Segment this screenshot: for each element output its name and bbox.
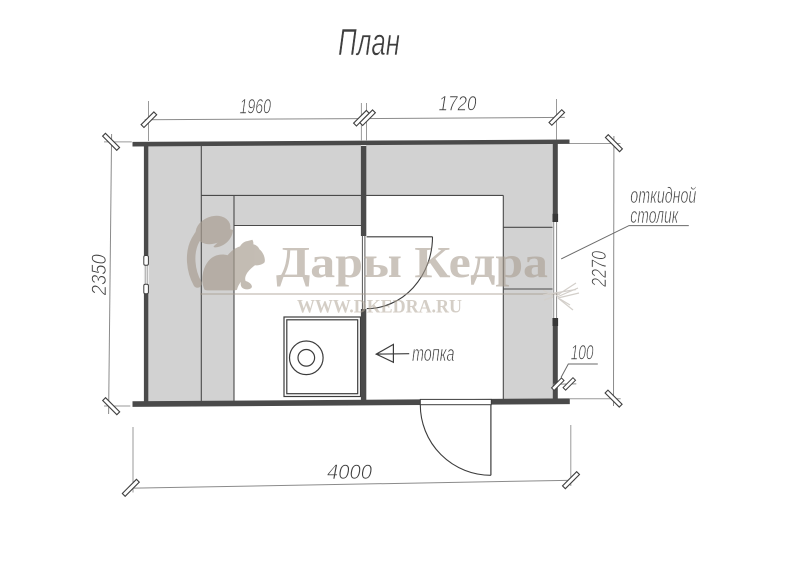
svg-text:WWW.DKEDRA.RU: WWW.DKEDRA.RU bbox=[297, 297, 462, 318]
svg-text:2350: 2350 bbox=[88, 254, 111, 296]
svg-text:столик: столик bbox=[630, 203, 679, 228]
svg-text:4000: 4000 bbox=[327, 461, 372, 484]
svg-text:Дары Кедра: Дары Кедра bbox=[276, 238, 548, 287]
svg-text:1960: 1960 bbox=[240, 95, 272, 118]
svg-text:100: 100 bbox=[571, 342, 594, 365]
svg-text:2270: 2270 bbox=[588, 251, 611, 288]
svg-text:топка: топка bbox=[412, 341, 455, 366]
svg-text:План: План bbox=[338, 22, 400, 64]
svg-text:1720: 1720 bbox=[439, 93, 477, 116]
